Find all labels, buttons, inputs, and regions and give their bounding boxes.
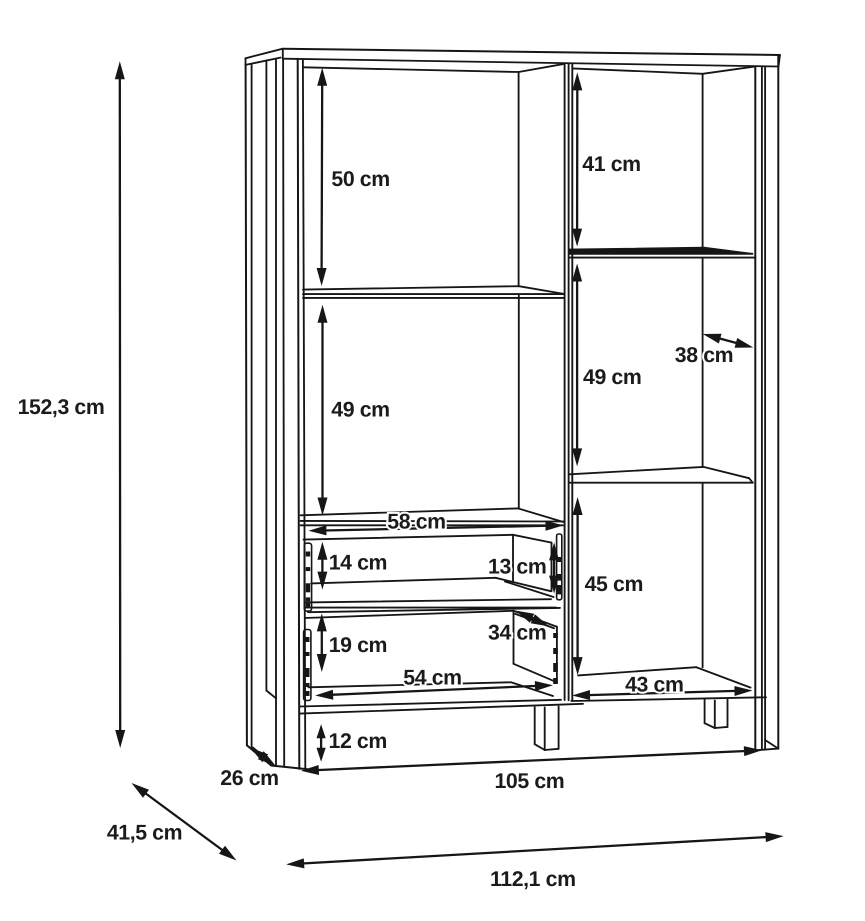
svg-text:49 cm: 49 cm bbox=[331, 398, 389, 422]
svg-text:49 cm: 49 cm bbox=[583, 365, 641, 389]
svg-text:41,5 cm: 41,5 cm bbox=[107, 821, 182, 845]
svg-text:45 cm: 45 cm bbox=[585, 572, 643, 596]
svg-text:12 cm: 12 cm bbox=[329, 729, 387, 753]
svg-text:58 cm: 58 cm bbox=[387, 510, 445, 534]
svg-text:19 cm: 19 cm bbox=[329, 633, 387, 657]
svg-text:26 cm: 26 cm bbox=[220, 766, 278, 790]
svg-text:112,1 cm: 112,1 cm bbox=[490, 867, 576, 891]
svg-text:41 cm: 41 cm bbox=[582, 152, 640, 176]
svg-text:43 cm: 43 cm bbox=[625, 673, 683, 697]
svg-text:105 cm: 105 cm bbox=[494, 769, 564, 793]
svg-text:38 cm: 38 cm bbox=[675, 343, 733, 367]
svg-text:13 cm: 13 cm bbox=[488, 555, 546, 579]
svg-text:54 cm: 54 cm bbox=[403, 666, 461, 690]
svg-text:152,3 cm: 152,3 cm bbox=[18, 395, 105, 419]
svg-text:50 cm: 50 cm bbox=[331, 167, 389, 191]
svg-text:34 cm: 34 cm bbox=[488, 620, 546, 644]
svg-text:14 cm: 14 cm bbox=[329, 551, 387, 575]
